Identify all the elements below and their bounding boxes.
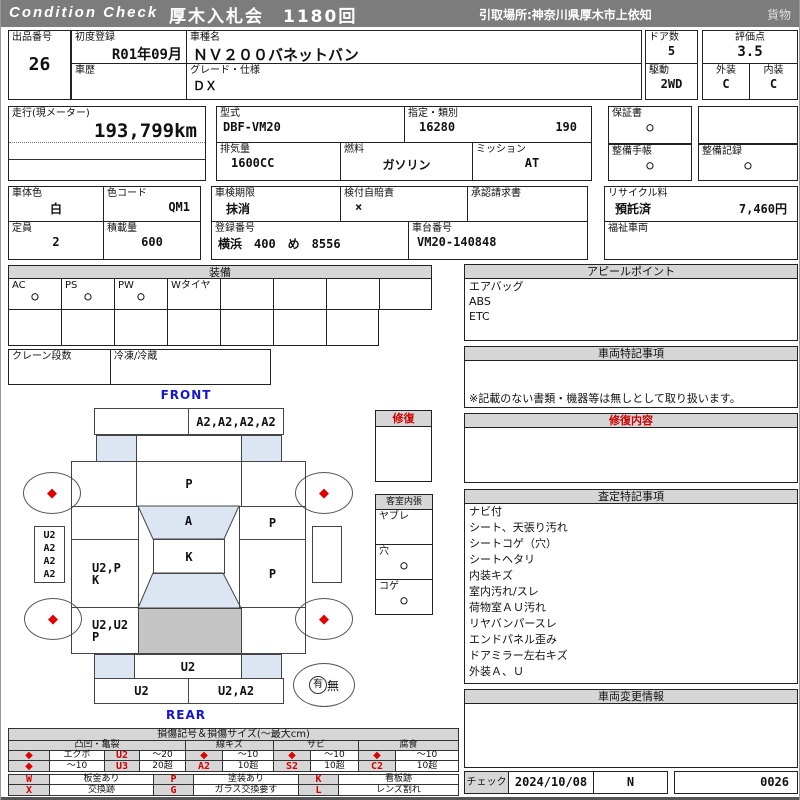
- change-info-header: 車両変更情報: [464, 689, 798, 704]
- right-quarter-panel: [239, 607, 306, 654]
- color-code-value: QM1: [104, 200, 200, 214]
- class-cell: 指定・類別 16280 190: [404, 106, 592, 143]
- color-code-cell: 色コード QM1: [103, 186, 201, 222]
- spare-yes-mark: 有: [309, 676, 327, 694]
- front-label: FRONT: [151, 388, 221, 402]
- equipment-row2-cell-3: [114, 309, 168, 346]
- left-front-fender-panel: [71, 461, 137, 507]
- equipment-value-pw: ○: [115, 289, 167, 303]
- lot-number-label: 出品番号: [9, 31, 70, 44]
- right-slide-door-panel: P: [239, 539, 306, 608]
- left-side-strip: U2 A2 A2 A2: [34, 526, 65, 583]
- drive-cell: 駆動 2WD: [645, 63, 698, 100]
- interior-grade-cell: 内装 C: [749, 63, 798, 100]
- legend-mark-g-label: ガラス交換要す: [193, 784, 299, 796]
- equipment-cell-empty-2: [273, 278, 327, 310]
- assessment-item: ナビ付: [465, 504, 797, 520]
- first-registration-value: R01年09月: [72, 44, 186, 64]
- rear-panel: U2: [134, 654, 242, 679]
- welfare-vehicle-label: 福祉車両: [605, 222, 797, 235]
- legend-code-c2: C2: [358, 760, 396, 772]
- maintenance-record-cell: 整備記録 ○: [698, 144, 798, 181]
- check-date-cell: 2024/10/08: [508, 771, 594, 794]
- check-date-value: 2024/10/08: [509, 772, 593, 793]
- registration-number-value: 横浜 400 め 8556: [212, 235, 408, 252]
- cabin-burn-value: ○: [376, 593, 432, 607]
- warranty-value: ○: [609, 120, 691, 134]
- body-color-label: 車体色: [9, 187, 103, 200]
- warranty-label: 保証書: [609, 107, 691, 120]
- fridge-cell: 冷凍/冷蔵: [110, 349, 271, 385]
- exterior-grade-cell: 外装 C: [702, 63, 750, 100]
- damage-diamond-icon: ◆: [319, 486, 329, 501]
- equipment-label-wtire: Wタイヤ: [168, 279, 220, 292]
- body-color-cell: 車体色 白: [8, 186, 104, 222]
- vehicle-category: 貨物: [767, 6, 791, 23]
- left-side-mark-2: A2: [43, 542, 55, 555]
- vehicle-notes-footer: ※記載のない書類・機器等は無しとして取り扱います。: [465, 391, 745, 406]
- model-code-value: DBF-VM20: [217, 120, 404, 134]
- interior-grade-label: 内装: [750, 64, 797, 77]
- assessment-item: 内装キズ: [465, 568, 797, 584]
- legend-code-a2: A2: [185, 760, 223, 772]
- doors-value: 5: [646, 44, 697, 58]
- right-front-fender-panel: [241, 461, 306, 507]
- damage-diamond-icon: ◆: [47, 486, 57, 501]
- welfare-vehicle-cell: 福祉車両: [604, 221, 798, 260]
- equipment-row2-cell-5: [220, 309, 274, 346]
- assessment-item: ドアミラー左右キズ: [465, 648, 797, 664]
- assessment-item: 室内汚れ/スレ: [465, 584, 797, 600]
- equipment-cell-empty-3: [326, 278, 380, 310]
- exterior-grade-label: 外装: [703, 64, 749, 77]
- legend-mark-g: G: [153, 784, 194, 796]
- equipment-row2-cell-2: [61, 309, 115, 346]
- repair-details-header: 修復内容: [464, 413, 798, 428]
- doors-label: ドア数: [646, 31, 697, 44]
- check-code-cell: N: [593, 771, 668, 794]
- left-slide-door-panel: U2,P K: [71, 539, 139, 608]
- approval-request-label: 承認請求書: [468, 187, 587, 200]
- cabin-hole-label: 穴: [376, 545, 432, 558]
- assessment-item: シートコゲ（穴）: [465, 536, 797, 552]
- sheet-number-cell: 0026: [674, 771, 798, 794]
- appeal-points-body: エアバッグ ABS ETC: [464, 278, 798, 341]
- equipment-cell-ac: AC ○: [8, 278, 62, 310]
- capacity-value: 2: [9, 235, 103, 249]
- cabin-interior-header: 客室内張: [375, 494, 433, 510]
- repair-flag-body: [375, 426, 432, 482]
- insurance-cell: 検付自賠責 ×: [340, 186, 468, 222]
- repair-flag-header: 修復: [375, 410, 432, 427]
- appeal-item: エアバッグ: [465, 279, 797, 294]
- history-cell: 車歴: [71, 63, 187, 100]
- displacement-label: 排気量: [217, 143, 340, 156]
- mileage-cell: 走行(現メーター) 193,799km: [8, 106, 206, 181]
- left-side-mark-4: A2: [43, 568, 55, 581]
- spare-tire-indicator: 有 無: [293, 663, 355, 707]
- drive-value: 2WD: [646, 77, 697, 91]
- maintenance-book-cell: 整備手帳 ○: [608, 144, 692, 181]
- first-registration-label: 初度登録: [72, 31, 186, 44]
- grade-label: グレード・仕様: [187, 64, 641, 77]
- fuel-label: 燃料: [341, 143, 472, 156]
- spare-no-mark: 無: [327, 677, 339, 694]
- model-code-label: 型式: [217, 107, 404, 120]
- grade-cell: グレード・仕様 ＤＸ: [186, 63, 642, 100]
- equipment-row2-cell-6: [273, 309, 327, 346]
- equipment-row2-cell-1: [8, 309, 62, 346]
- rear-window-shape: [138, 573, 241, 608]
- registration-number-cell: 登録番号 横浜 400 め 8556: [211, 221, 409, 260]
- model-name-cell: 車種名 ＮＶ２００バネットバン: [186, 30, 642, 64]
- check-code-value: N: [594, 772, 667, 793]
- maintenance-book-label: 整備手帳: [609, 145, 691, 158]
- exterior-grade-value: C: [703, 77, 749, 91]
- condition-check-sheet: Condition Check 厚木入札会 1180回 引取場所:神奈川県厚木市…: [0, 0, 800, 800]
- registration-number-label: 登録番号: [212, 222, 408, 235]
- score-label: 評価点: [703, 31, 797, 44]
- equipment-cell-ps: PS ○: [61, 278, 115, 310]
- left-side-mark-3: A2: [43, 555, 55, 568]
- equipment-row2-cell-7: [326, 309, 379, 346]
- mileage-label: 走行(現メーター): [9, 107, 205, 120]
- legend-code-u3: U3: [104, 760, 140, 772]
- sheet-number-value: 0026: [675, 772, 797, 793]
- chassis-number-label: 車台番号: [409, 222, 587, 235]
- lot-number-cell: 出品番号 26: [8, 30, 71, 100]
- rear-corner-left-panel: [94, 654, 135, 679]
- left-front-door-panel: [71, 506, 139, 540]
- color-code-label: 色コード: [104, 187, 200, 200]
- equipment-cell-empty-1: [220, 278, 274, 310]
- legend-diamond-icon: ◆: [8, 760, 50, 772]
- insurance-value: ×: [341, 200, 467, 214]
- equipment-value-ps: ○: [62, 289, 114, 303]
- inspection-label: 車検期限: [212, 187, 340, 200]
- legend-size: 〜10: [49, 760, 105, 772]
- capacity-label: 定員: [9, 222, 103, 235]
- legend-code-s2: S2: [273, 760, 311, 772]
- maintenance-book-value: ○: [609, 158, 691, 172]
- class-number-2: 190: [555, 120, 577, 134]
- left-slide-door-mark-2: K: [92, 574, 99, 586]
- score-value: 3.5: [703, 44, 797, 60]
- title-bar: Condition Check 厚木入札会 1180回 引取場所:神奈川県厚木市…: [1, 0, 800, 27]
- roof-panel: K: [153, 539, 225, 574]
- grade-value: ＤＸ: [187, 77, 641, 94]
- assessment-item: 外装Ａ、Ｕ: [465, 664, 797, 680]
- right-front-door-panel: P: [239, 506, 306, 540]
- equipment-cell-wtire: Wタイヤ: [167, 278, 221, 310]
- warranty-extra-cell: [698, 106, 798, 144]
- damage-diamond-icon: ◆: [319, 612, 329, 627]
- crane-label: クレーン段数: [9, 350, 110, 363]
- transmission-value: AT: [473, 156, 591, 170]
- auction-title: 厚木入札会 1180回: [169, 2, 357, 27]
- assessment-item: シートヘタリ: [465, 552, 797, 568]
- check-label-cell: チェック: [464, 771, 509, 794]
- lot-number-value: 26: [9, 54, 70, 75]
- appeal-item: ETC: [465, 309, 797, 324]
- body-color-value: 白: [9, 200, 103, 217]
- displacement-cell: 排気量 1600CC: [216, 142, 341, 181]
- windshield-mark: A: [161, 514, 216, 528]
- cabin-hole-value: ○: [376, 558, 432, 572]
- left-quarter-mark-2: P: [92, 631, 99, 643]
- left-quarter-panel: U2,U2 P: [71, 607, 139, 654]
- chassis-number-cell: 車台番号 VM20-140848: [408, 221, 588, 260]
- legend-mark-x: X: [8, 784, 50, 796]
- recycle-fee-label: リサイクル料: [605, 187, 797, 200]
- cabin-tear-label: ヤブレ: [376, 510, 432, 523]
- left-quarter-mark-1: U2,U2: [92, 619, 128, 631]
- load-capacity-label: 積載量: [104, 222, 200, 235]
- inspection-value: 抹消: [212, 200, 340, 217]
- recycle-fee-cell: リサイクル料 預託済 7,460円: [604, 186, 798, 222]
- pickup-location: 引取場所:神奈川県厚木市上依知: [479, 6, 652, 23]
- capacity-cell: 定員 2: [8, 221, 104, 260]
- assessment-item: シート、天張り汚れ: [465, 520, 797, 536]
- equipment-cell-pw: PW ○: [114, 278, 168, 310]
- fridge-label: 冷凍/冷蔵: [111, 350, 270, 363]
- model-code-cell: 型式 DBF-VM20: [216, 106, 405, 143]
- transmission-cell: ミッション AT: [472, 142, 592, 181]
- vehicle-notes-body: ※記載のない書類・機器等は無しとして取り扱います。: [464, 360, 798, 408]
- appeal-item: ABS: [465, 294, 797, 309]
- insurance-label: 検付自賠責: [341, 187, 467, 200]
- first-registration-cell: 初度登録 R01年09月: [71, 30, 187, 64]
- score-cell: 評価点 3.5: [702, 30, 798, 64]
- front-panel: [136, 435, 242, 462]
- rear-label: REAR: [151, 708, 221, 722]
- assessment-notes-body: ナビ付 シート、天張り汚れ シートコゲ（穴） シートヘタリ 内装キズ 室内汚れ/…: [464, 503, 798, 684]
- appeal-points-header: アピールポイント: [464, 264, 798, 279]
- rear-bumper-left-panel: U2: [94, 678, 189, 704]
- assessment-item: 荷物室ＡＵ汚れ: [465, 600, 797, 616]
- cabin-burn-label: コゲ: [376, 580, 432, 593]
- displacement-value: 1600CC: [217, 156, 340, 170]
- front-bumper-right-panel: A2,A2,A2,A2: [188, 408, 284, 435]
- warranty-cell: 保証書 ○: [608, 106, 692, 144]
- class-number: 16280: [419, 120, 455, 134]
- rear-corner-right-panel: [241, 654, 282, 679]
- equipment-value-ac: ○: [9, 289, 61, 303]
- equipment-cell-empty-4: [379, 278, 432, 310]
- class-label: 指定・類別: [405, 107, 591, 120]
- brand-logo: Condition Check: [9, 4, 158, 21]
- repair-details-body: [464, 427, 798, 483]
- left-side-mark-1: U2: [43, 529, 55, 542]
- history-label: 車歴: [72, 64, 186, 77]
- mileage-empty-row: [9, 143, 205, 160]
- mileage-value: 193,799km: [9, 120, 205, 142]
- legend-size: 10超: [222, 760, 274, 772]
- legend-size: 20超: [139, 760, 186, 772]
- rear-bumper-right-panel: U2,A2: [188, 678, 284, 704]
- vehicle-notes-header: 車両特記事項: [464, 346, 798, 361]
- hood-panel: P: [136, 461, 242, 507]
- legend-size: 10超: [395, 760, 459, 772]
- cabin-hole-cell: 穴 ○: [375, 544, 433, 580]
- equipment-row2-cell-4: [167, 309, 221, 346]
- equipment-header: 装備: [8, 265, 432, 279]
- legend-size: 10超: [310, 760, 359, 772]
- legend-mark-x-label: 交換跡: [49, 784, 154, 796]
- maintenance-record-value: ○: [699, 158, 797, 172]
- inspection-cell: 車検期限 抹消: [211, 186, 341, 222]
- drive-label: 駆動: [646, 64, 697, 77]
- rear-hatch-panel: [138, 608, 242, 654]
- model-name-value: ＮＶ２００バネットバン: [187, 44, 641, 65]
- load-capacity-value: 600: [104, 235, 200, 249]
- change-info-body: [464, 703, 798, 768]
- right-side-strip: [312, 526, 342, 583]
- fuel-value: ガソリン: [341, 156, 472, 173]
- approval-request-cell: 承認請求書: [467, 186, 588, 222]
- interior-grade-value: C: [750, 77, 797, 91]
- model-name-label: 車種名: [187, 31, 641, 44]
- doors-cell: ドア数 5: [645, 30, 698, 64]
- assessment-item: リヤバンパースレ: [465, 616, 797, 632]
- fuel-cell: 燃料 ガソリン: [340, 142, 473, 181]
- load-capacity-cell: 積載量 600: [103, 221, 201, 260]
- left-slide-door-mark-1: U2,P: [92, 562, 121, 574]
- front-corner-left-panel: [96, 435, 137, 462]
- transmission-label: ミッション: [473, 143, 591, 156]
- recycle-status: 預託済: [615, 200, 651, 217]
- crane-cell: クレーン段数: [8, 349, 111, 385]
- cabin-burn-cell: コゲ ○: [375, 579, 433, 615]
- assessment-notes-header: 査定特記事項: [464, 489, 798, 504]
- legend-mark-l: L: [298, 784, 339, 796]
- chassis-number-value: VM20-140848: [409, 235, 587, 249]
- legend-mark-l-label: レンズ割れ: [338, 784, 459, 796]
- recycle-fee-value: 7,460円: [739, 200, 787, 217]
- assessment-item: エンドパネル歪み: [465, 632, 797, 648]
- damage-diamond-icon: ◆: [48, 612, 58, 627]
- front-bumper-left-panel: [94, 408, 189, 435]
- maintenance-record-label: 整備記録: [699, 145, 797, 158]
- front-corner-right-panel: [241, 435, 282, 462]
- cabin-tear-cell: ヤブレ: [375, 509, 433, 545]
